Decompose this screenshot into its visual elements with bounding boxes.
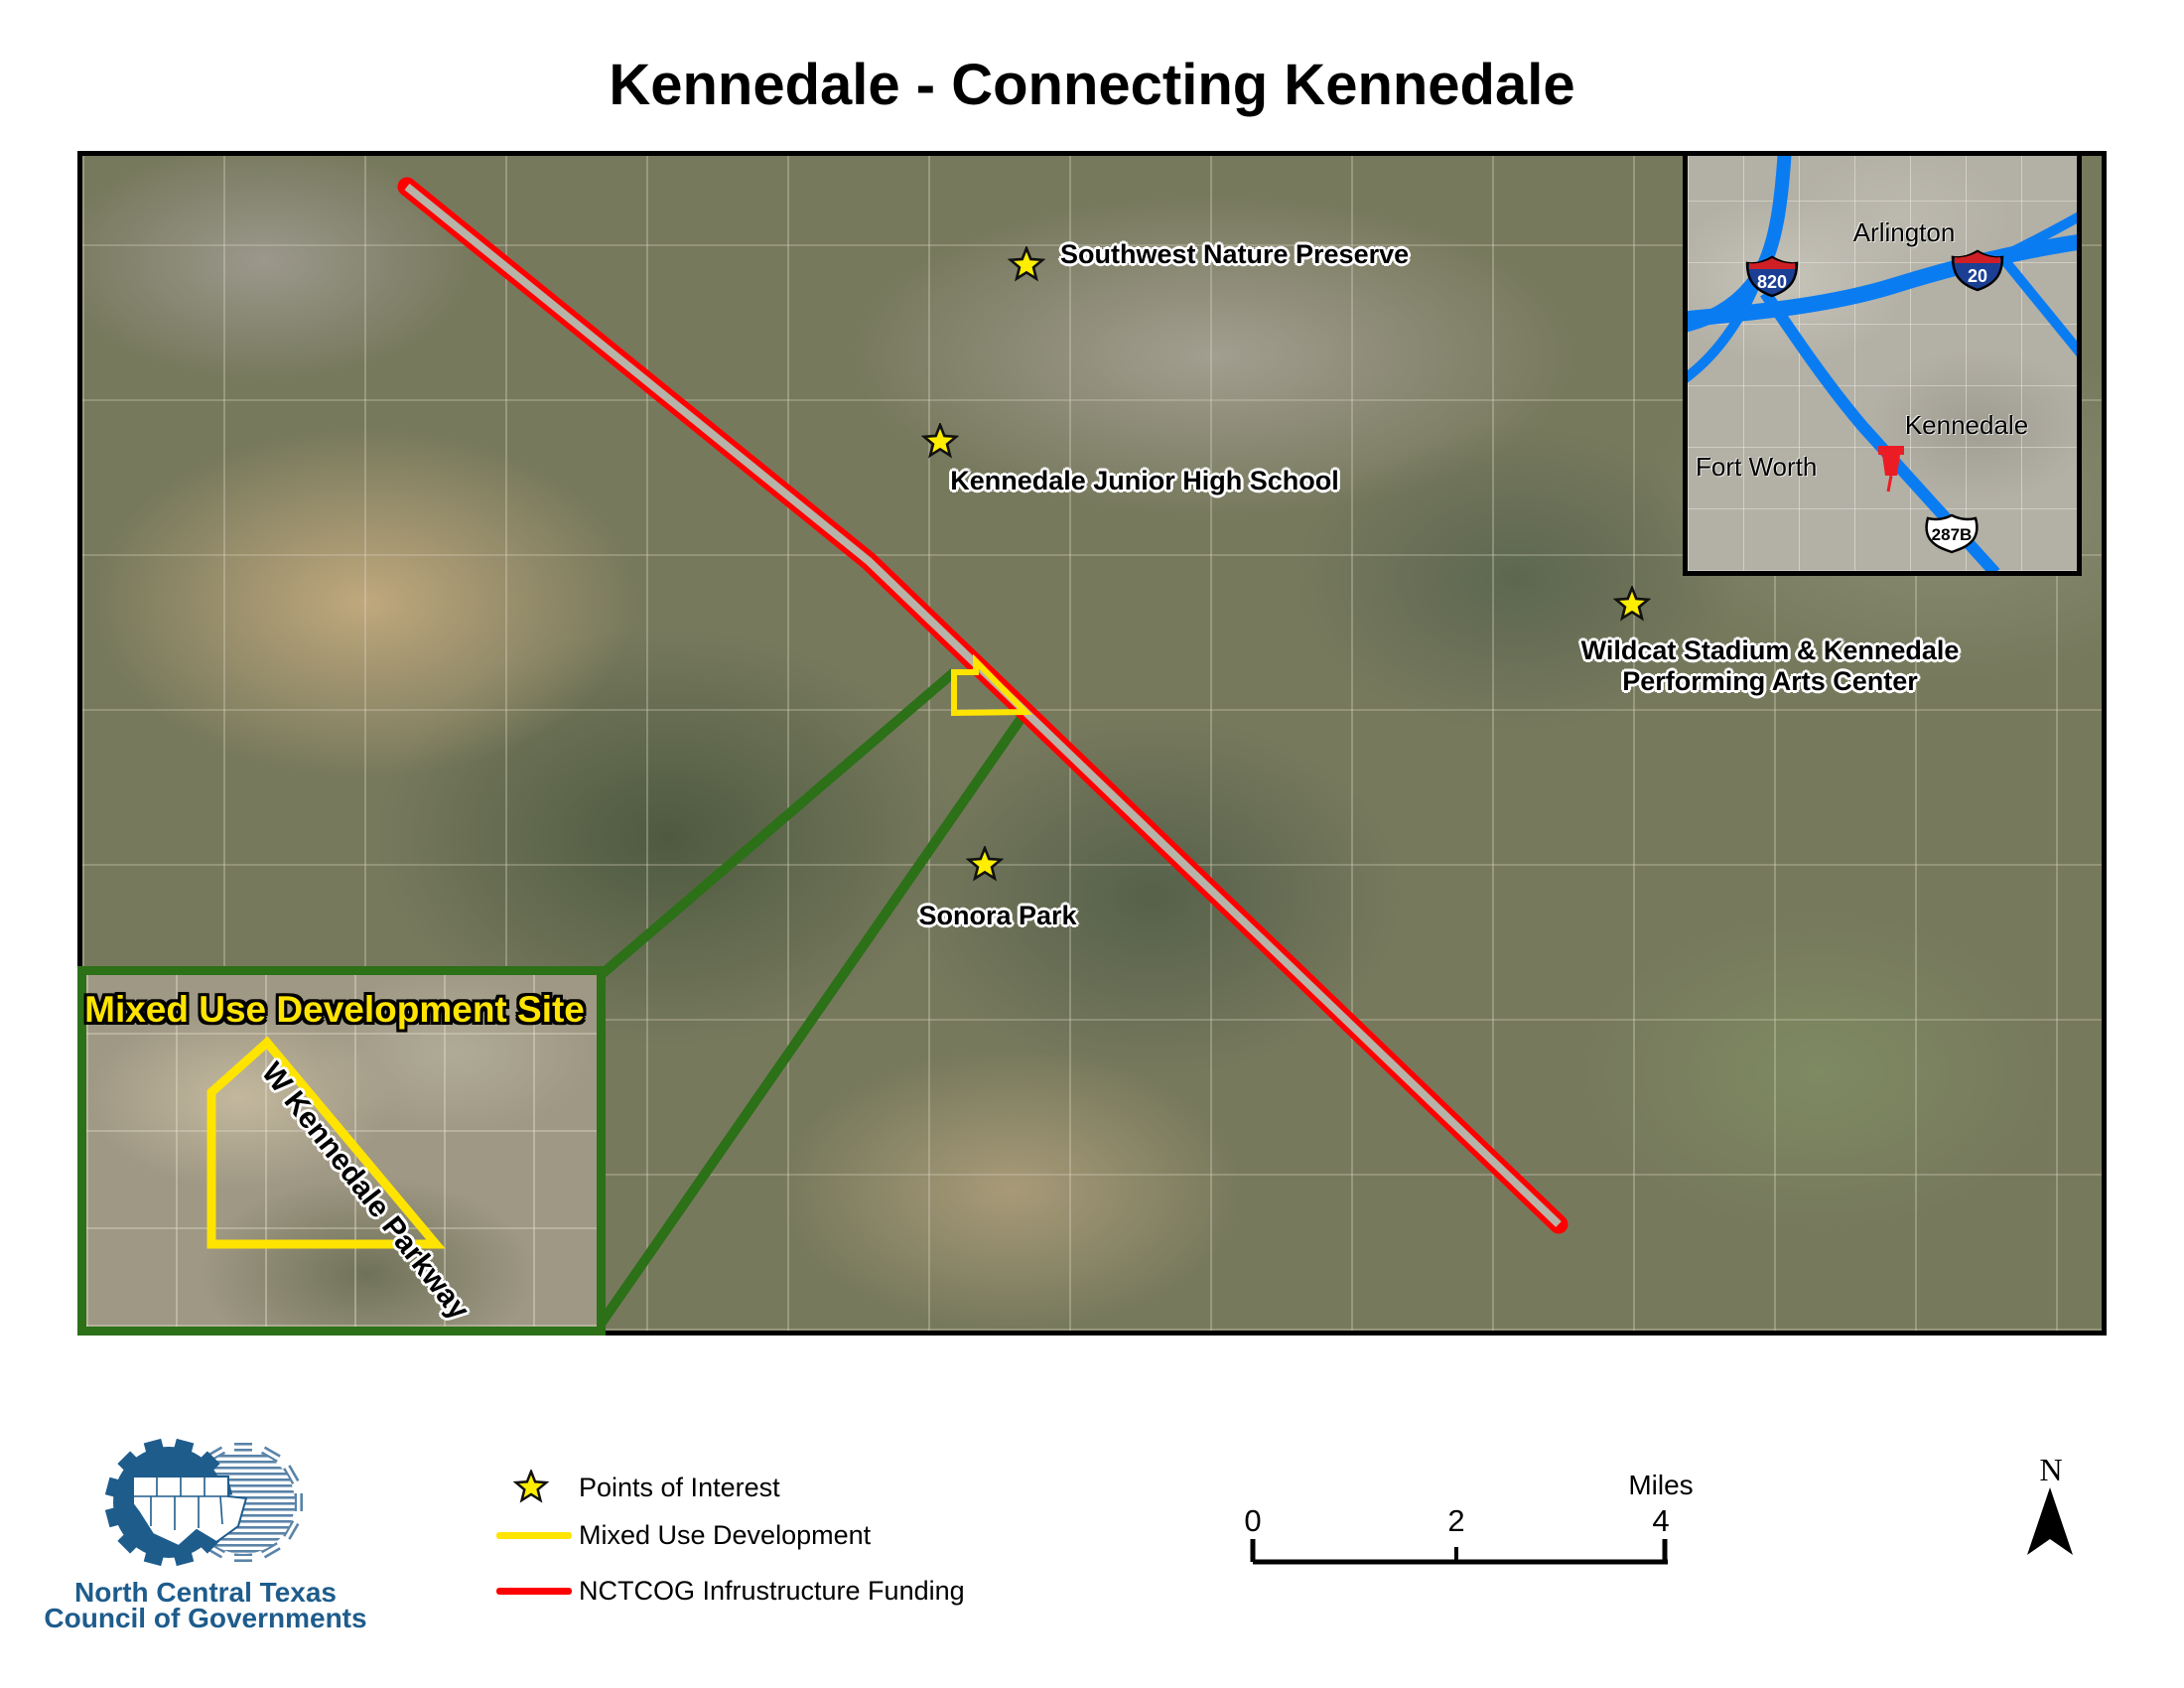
legend-label-mixed-use: Mixed Use Development [579, 1520, 871, 1551]
region-label-kennedale: Kennedale [1905, 410, 2028, 441]
i820-shield-number: 820 [1757, 272, 1787, 292]
poi-label-southwest-nature-preserve: Southwest Nature Preserve [1060, 239, 1409, 270]
highway-right-diagonal-line [2005, 261, 2077, 358]
page-title: Kennedale - Connecting Kennedale [0, 52, 2184, 118]
site-inset-map: Mixed Use Development Site W Kennedale P… [77, 966, 606, 1336]
main-map: Southwest Nature Preserve Kennedale Juni… [77, 151, 2107, 1336]
region-label-arlington: Arlington [1853, 217, 1956, 248]
callout-line-top [600, 672, 954, 976]
i20-shield-icon: 20 [1953, 251, 2002, 290]
poi-star-icon-sonora-park [966, 846, 1004, 884]
legend-swatch-mixed-use [496, 1532, 572, 1539]
poi-star-icon-southwest-nature-preserve [1008, 246, 1045, 284]
north-label: N [2039, 1452, 2062, 1488]
us287b-shield-number: 287B [1932, 525, 1973, 544]
north-arrow-icon [2027, 1487, 2075, 1557]
region-inset-map: 820 20 287B [1683, 151, 2082, 576]
nctcog-logo-icon [81, 1435, 330, 1572]
legend-swatch-nctcog-funding [496, 1588, 572, 1595]
poi-label-sonora-park: Sonora Park [918, 901, 1076, 931]
legend-star-icon [513, 1470, 549, 1505]
poi-label-wildcat-stadium: Wildcat Stadium & Kennedale Performing A… [1581, 635, 1960, 697]
region-label-fort-worth: Fort Worth [1696, 452, 1817, 483]
poi-star-icon-junior-high [921, 423, 959, 461]
poi-star-icon-wildcat-stadium [1613, 586, 1651, 624]
logo-text-line2: Council of Governments [37, 1603, 374, 1634]
legend-label-nctcog-funding: NCTCOG Infrustructure Funding [579, 1576, 965, 1607]
scalebar-unit-label: Miles [1628, 1470, 1693, 1501]
map-document: Kennedale - Connecting Kennedale Sout [0, 0, 2184, 1688]
callout-line-bottom [600, 712, 1025, 1326]
i20-shield-number: 20 [1968, 266, 1987, 286]
poi-label-wildcat-line2: Performing Arts Center [1581, 666, 1960, 697]
poi-label-wildcat-line1: Wildcat Stadium & Kennedale [1581, 635, 1960, 666]
legend-label-points-of-interest: Points of Interest [579, 1473, 780, 1503]
poi-label-junior-high: Kennedale Junior High School [950, 466, 1339, 496]
site-inset-title: Mixed Use Development Site [84, 989, 585, 1031]
scalebar-icon [1246, 1534, 1673, 1566]
